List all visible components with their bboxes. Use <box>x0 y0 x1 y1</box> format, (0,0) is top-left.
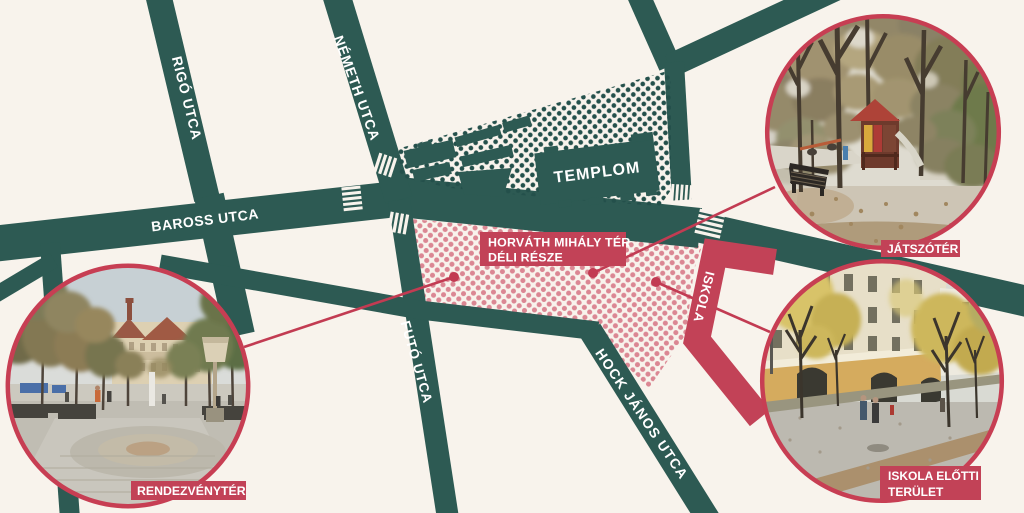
svg-text:DÉLI RÉSZE: DÉLI RÉSZE <box>488 250 563 265</box>
svg-text:JÁTSZÓTÉR: JÁTSZÓTÉR <box>887 241 959 256</box>
svg-text:TERÜLET: TERÜLET <box>888 484 944 499</box>
svg-text:RENDEZVÉNYTÉR: RENDEZVÉNYTÉR <box>137 483 246 498</box>
svg-text:HORVÁTH MIHÁLY TÉR: HORVÁTH MIHÁLY TÉR <box>488 235 630 250</box>
svg-text:ISKOLA ELŐTTI: ISKOLA ELŐTTI <box>888 468 979 483</box>
